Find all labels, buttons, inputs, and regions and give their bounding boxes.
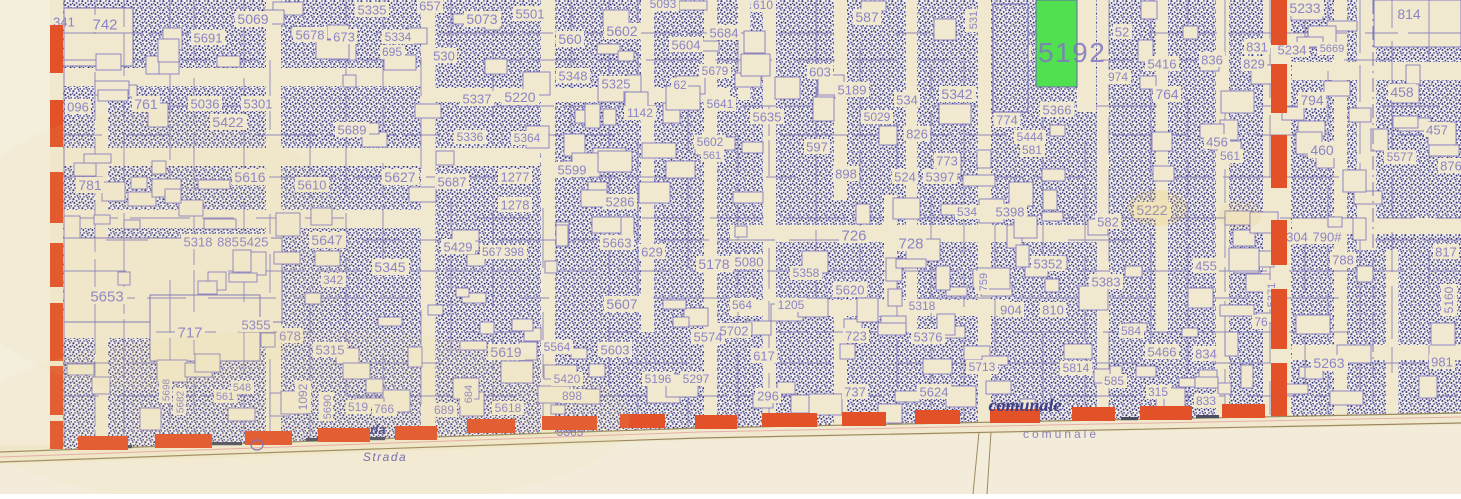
svg-text:5335: 5335	[358, 3, 387, 18]
svg-text:304: 304	[1286, 230, 1308, 245]
svg-text:5602: 5602	[606, 23, 637, 39]
svg-text:695: 695	[382, 45, 402, 59]
svg-text:5602: 5602	[697, 135, 724, 149]
svg-text:981: 981	[1431, 355, 1453, 370]
svg-text:817: 817	[1435, 245, 1457, 260]
svg-text:531: 531	[968, 11, 980, 29]
svg-text:5429: 5429	[444, 240, 473, 255]
svg-text:876: 876	[1440, 159, 1461, 174]
svg-text:398: 398	[504, 245, 524, 259]
svg-text:5263: 5263	[1313, 355, 1344, 371]
svg-text:5196: 5196	[645, 372, 672, 386]
svg-text:790#: 790#	[1313, 230, 1343, 245]
svg-text:761: 761	[134, 96, 158, 112]
svg-text:567: 567	[482, 245, 502, 259]
svg-text:52: 52	[1115, 25, 1129, 40]
svg-text:5574: 5574	[694, 330, 723, 345]
svg-text:610: 610	[753, 0, 773, 12]
svg-text:5366: 5366	[1043, 103, 1072, 118]
svg-text:5192: 5192	[1038, 37, 1106, 68]
svg-text:5635: 5635	[753, 110, 782, 125]
svg-text:5029: 5029	[864, 110, 891, 124]
svg-text:5620: 5620	[836, 283, 865, 298]
svg-text:5814: 5814	[1063, 361, 1090, 375]
svg-text:455: 455	[1195, 259, 1217, 274]
svg-text:524: 524	[894, 170, 916, 185]
svg-text:582: 582	[1097, 215, 1119, 230]
svg-text:561: 561	[1220, 149, 1240, 163]
svg-text:773: 773	[936, 154, 958, 169]
svg-text:5397: 5397	[926, 170, 955, 185]
svg-text:5286: 5286	[606, 195, 635, 210]
svg-text:587: 587	[855, 9, 879, 25]
svg-text:458: 458	[1390, 84, 1414, 100]
svg-text:5684: 5684	[710, 26, 739, 41]
svg-text:726: 726	[841, 227, 866, 244]
svg-text:534: 534	[957, 205, 977, 219]
svg-text:5352: 5352	[1034, 257, 1063, 272]
svg-text:5080: 5080	[735, 255, 764, 270]
svg-text:673: 673	[333, 30, 355, 45]
svg-text:898: 898	[835, 167, 857, 182]
svg-text:5178: 5178	[698, 256, 729, 272]
svg-text:457: 457	[1426, 123, 1448, 138]
svg-text:5297: 5297	[683, 372, 710, 386]
svg-text:096: 096	[67, 100, 89, 115]
svg-text:737: 737	[844, 385, 866, 400]
svg-text:810: 810	[1042, 303, 1064, 318]
svg-text:1277: 1277	[501, 170, 530, 185]
svg-text:1142: 1142	[627, 106, 653, 120]
svg-text:5160: 5160	[1442, 286, 1456, 313]
svg-text:5364: 5364	[514, 131, 541, 145]
svg-text:5689: 5689	[338, 123, 367, 138]
svg-text:560: 560	[558, 31, 582, 47]
svg-text:460: 460	[1310, 142, 1334, 158]
svg-text:456: 456	[1206, 135, 1228, 150]
svg-text:5301: 5301	[244, 97, 273, 112]
svg-text:774: 774	[996, 113, 1018, 128]
svg-text:5336: 5336	[457, 130, 484, 144]
svg-text:5093: 5093	[650, 0, 677, 11]
svg-text:833: 833	[1196, 394, 1216, 408]
svg-text:5687: 5687	[438, 175, 467, 190]
svg-text:5627: 5627	[384, 169, 415, 185]
svg-text:728: 728	[898, 235, 923, 252]
svg-text:5466: 5466	[1148, 345, 1177, 360]
svg-text:814: 814	[1397, 6, 1421, 22]
svg-text:5398: 5398	[996, 205, 1025, 220]
svg-text:974: 974	[1108, 70, 1128, 84]
svg-text:534: 534	[896, 93, 918, 108]
svg-text:5607: 5607	[606, 296, 637, 312]
svg-text:831: 831	[1246, 40, 1268, 55]
svg-text:829: 829	[1243, 57, 1265, 72]
svg-text:5342: 5342	[941, 86, 972, 102]
svg-text:561: 561	[703, 150, 721, 162]
svg-text:794: 794	[1300, 92, 1324, 108]
svg-text:5678: 5678	[296, 28, 325, 43]
svg-text:5702: 5702	[720, 324, 749, 339]
svg-text:5679: 5679	[702, 64, 729, 78]
svg-text:1278: 1278	[501, 198, 530, 213]
svg-text:5325: 5325	[602, 77, 631, 92]
svg-text:5599: 5599	[558, 163, 587, 178]
svg-text:5444: 5444	[1017, 130, 1044, 144]
svg-text:629: 629	[641, 245, 663, 260]
svg-text:5337: 5337	[463, 92, 492, 107]
svg-text:296: 296	[757, 389, 779, 404]
svg-text:5604: 5604	[672, 38, 701, 53]
svg-text:5669: 5669	[1320, 43, 1344, 55]
svg-text:5318: 5318	[909, 299, 936, 313]
svg-text:comunale: comunale	[988, 395, 1061, 415]
svg-text:597: 597	[806, 140, 828, 155]
svg-text:315: 315	[1148, 385, 1168, 399]
svg-text:62: 62	[673, 78, 687, 92]
svg-text:5641: 5641	[707, 97, 734, 111]
svg-text:5624: 5624	[920, 385, 949, 400]
svg-text:530: 530	[433, 49, 455, 64]
svg-text:5564: 5564	[544, 340, 571, 354]
svg-text:742: 742	[92, 16, 117, 33]
svg-text:834: 834	[1195, 347, 1217, 362]
svg-text:5691: 5691	[194, 31, 223, 46]
svg-text:904: 904	[1000, 303, 1022, 318]
svg-text:764: 764	[1155, 86, 1179, 102]
svg-text:5501: 5501	[516, 7, 545, 22]
svg-text:5713: 5713	[969, 360, 996, 374]
svg-text:5069: 5069	[237, 11, 268, 27]
svg-text:788: 788	[1332, 253, 1354, 268]
svg-text:5577: 5577	[1387, 150, 1414, 164]
svg-text:5233: 5233	[1289, 0, 1320, 16]
svg-text:585: 585	[1104, 374, 1124, 388]
svg-text:723: 723	[845, 329, 867, 344]
svg-text:5663: 5663	[603, 236, 632, 251]
svg-text:76: 76	[1254, 315, 1268, 329]
svg-text:5376: 5376	[914, 330, 943, 345]
svg-text:5603: 5603	[601, 343, 630, 358]
svg-text:5358: 5358	[793, 266, 820, 280]
svg-text:657: 657	[419, 0, 441, 14]
svg-text:5348: 5348	[559, 69, 588, 84]
svg-text:617: 617	[753, 349, 775, 364]
svg-text:581: 581	[1022, 143, 1042, 157]
svg-text:5036: 5036	[191, 97, 220, 112]
svg-text:1205: 1205	[778, 298, 805, 312]
svg-text:826: 826	[906, 127, 928, 142]
svg-text:5189: 5189	[838, 83, 867, 98]
svg-text:759: 759	[978, 273, 990, 291]
svg-text:5334: 5334	[385, 30, 412, 44]
svg-text:5220: 5220	[504, 89, 535, 105]
svg-text:5073: 5073	[466, 11, 497, 27]
svg-text:603: 603	[809, 65, 831, 80]
svg-text:836: 836	[1201, 53, 1223, 68]
svg-text:comunale: comunale	[1023, 427, 1099, 441]
svg-text:5345: 5345	[374, 259, 405, 275]
svg-text:5383: 5383	[1092, 275, 1121, 290]
svg-text:564: 564	[732, 298, 752, 312]
svg-text:5416: 5416	[1148, 57, 1177, 72]
svg-text:584: 584	[1121, 324, 1141, 338]
